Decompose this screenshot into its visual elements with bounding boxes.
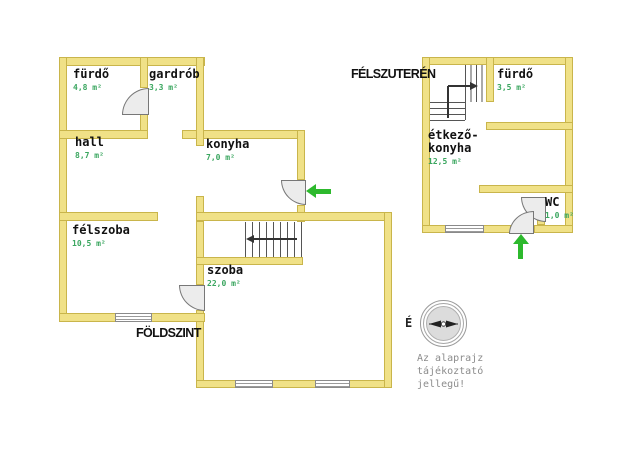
gf-staircase-arrow-shaft bbox=[253, 238, 297, 240]
gf-door-entrance-arc bbox=[281, 180, 306, 205]
room-name: gardrób bbox=[149, 68, 200, 81]
gf-window-room-east bbox=[315, 380, 350, 388]
room-label-room: szoba 22,0 m² bbox=[207, 264, 243, 288]
bm-window-bottom bbox=[445, 225, 484, 233]
room-label-hall: hall 8,7 m² bbox=[75, 136, 104, 160]
room-label-wc: WC 1,0 m² bbox=[545, 196, 574, 220]
room-label-kitchen: konyha 7,0 m² bbox=[206, 138, 249, 162]
gf-window-halfroom bbox=[115, 313, 152, 322]
bm-wall-top bbox=[422, 57, 573, 65]
room-name: szoba bbox=[207, 264, 243, 277]
room-label-bath-ground: fürdő 4,8 m² bbox=[73, 68, 109, 92]
room-name: hall bbox=[75, 136, 104, 149]
bm-wall-middle bbox=[479, 185, 573, 193]
compass-needle-icon bbox=[427, 317, 460, 331]
disclaimer-line-2: tájékoztató bbox=[417, 365, 483, 378]
gf-wall-kitchen-right bbox=[297, 130, 305, 180]
bm-entrance-arrow-shaft bbox=[518, 243, 523, 259]
room-name: étkező-konyha bbox=[428, 129, 482, 155]
room-area: 22,0 m² bbox=[207, 279, 243, 288]
bm-door-entrance-arc bbox=[509, 211, 534, 234]
room-name: fürdő bbox=[497, 68, 533, 81]
ground-floor-title: FÖLDSZINT bbox=[136, 326, 201, 340]
gf-wall-top bbox=[59, 57, 205, 66]
gf-staircase-arrow-head bbox=[246, 235, 254, 243]
gf-wall-room-bottom bbox=[196, 380, 392, 388]
bm-staircase-boundary-line bbox=[465, 65, 466, 120]
gf-wall-room-right bbox=[384, 212, 392, 388]
room-area: 12,5 m² bbox=[428, 157, 482, 166]
room-area: 3,5 m² bbox=[497, 83, 533, 92]
room-label-closet: gardrób 3,3 m² bbox=[149, 68, 200, 92]
gf-wall-hall-halfroom-divider bbox=[59, 212, 158, 221]
bm-wall-bottom-east bbox=[534, 225, 573, 233]
bm-staircase-arrow-vseg bbox=[447, 86, 449, 118]
bm-staircase-arrow-hseg bbox=[448, 85, 472, 87]
gf-wall-bath-closet-divider-upper bbox=[140, 57, 148, 88]
room-label-dining-kitchen: étkező-konyha 12,5 m² bbox=[428, 129, 482, 166]
room-name: félszoba bbox=[72, 224, 130, 237]
disclaimer-line-1: Az alaprajz bbox=[417, 352, 483, 365]
gf-wall-block-top bbox=[196, 212, 392, 221]
room-area: 1,0 m² bbox=[545, 211, 574, 220]
gf-wall-room-left-upper bbox=[196, 221, 204, 285]
room-area: 8,7 m² bbox=[75, 151, 104, 160]
gf-wall-outer-left bbox=[59, 57, 67, 322]
room-name: fürdő bbox=[73, 68, 109, 81]
gf-window-room-west bbox=[235, 380, 273, 388]
room-label-halfroom: félszoba 10,5 m² bbox=[72, 224, 130, 248]
room-area: 3,3 m² bbox=[149, 83, 200, 92]
basement-title: FÉLSZUTERÉN bbox=[351, 67, 435, 81]
floor-plan-canvas: fürdő 4,8 m² gardrób 3,3 m² hall 8,7 m² … bbox=[0, 0, 643, 450]
bm-wall-stairs-right bbox=[486, 57, 494, 102]
room-label-bath-basement: fürdő 3,5 m² bbox=[497, 68, 533, 92]
gf-door-room-arc bbox=[179, 285, 205, 311]
bm-staircase-arrow-head bbox=[470, 82, 478, 90]
gf-door-bath-arc bbox=[122, 88, 149, 115]
room-area: 7,0 m² bbox=[206, 153, 249, 162]
compass-north-label: É bbox=[405, 316, 412, 330]
gf-entrance-arrow-shaft bbox=[315, 189, 331, 194]
disclaimer-line-3: jellegű! bbox=[417, 378, 465, 391]
room-name: konyha bbox=[206, 138, 249, 151]
room-name: WC bbox=[545, 196, 574, 209]
bm-wall-bath-bottom bbox=[486, 122, 573, 130]
room-area: 4,8 m² bbox=[73, 83, 109, 92]
room-area: 10,5 m² bbox=[72, 239, 130, 248]
